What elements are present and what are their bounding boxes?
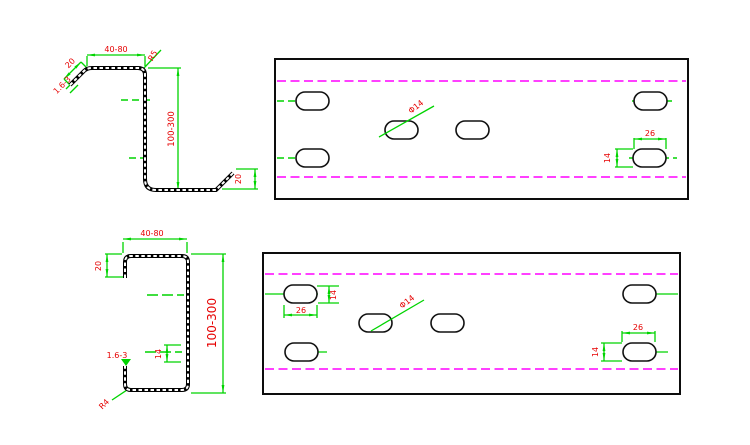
- slot-hole: [623, 343, 656, 361]
- dim-label-slot-width: 14: [154, 349, 163, 359]
- cad-drawing-canvas: 40-80 R5 20 1.6-3 100-300 20: [0, 0, 750, 445]
- dim-label-web-height: 100-300: [167, 111, 177, 147]
- dim-label-slot-length: 26: [645, 129, 655, 138]
- profile-hatch: [125, 256, 188, 390]
- extension-line: [81, 62, 87, 68]
- dim-label-slot-width: 14: [603, 153, 612, 163]
- slot-hole: [285, 343, 318, 361]
- slot-hole: [359, 314, 392, 332]
- dim-label-web-height: 100-300: [205, 298, 219, 348]
- dim-label-flange-width: 40-80: [140, 229, 163, 238]
- dim-label-flange-width: 40-80: [104, 45, 127, 54]
- dim-label-slot-length-left: 26: [296, 306, 306, 315]
- c-profile-view: 40-80 20 100-300 14 1.6-3 R4: [94, 229, 226, 411]
- slot-hole: [456, 121, 489, 139]
- slot-hole: [284, 285, 317, 303]
- dim-label-thickness: 1.6-3: [107, 351, 128, 360]
- dim-label-lip-length: 20: [94, 261, 103, 271]
- dim-label-slot-width-right: 14: [591, 347, 600, 357]
- dim-label-bend-radius: R5: [146, 49, 159, 63]
- slot-hole: [296, 92, 329, 110]
- dim-label-bend-radius: R4: [97, 397, 111, 411]
- profile-outline: [70, 68, 233, 190]
- slot-hole: [633, 149, 666, 167]
- slot-hole: [431, 314, 464, 332]
- dim-label-bottom-lip: 20: [234, 174, 243, 184]
- dim-label-slot-length-right: 26: [633, 323, 643, 332]
- slot-hole: [634, 92, 667, 110]
- top-strip-view: Φ14 26 14: [275, 59, 688, 199]
- thickness-arrow: [121, 359, 131, 366]
- slot-hole: [623, 285, 656, 303]
- slot-hole: [296, 149, 329, 167]
- z-profile-view: 40-80 R5 20 1.6-3 100-300 20: [52, 45, 258, 190]
- dim-label-slot-width-left: 14: [329, 290, 338, 300]
- profile-hatch: [70, 68, 233, 190]
- bottom-strip-view: 14 26 Φ14 26 14: [263, 253, 680, 394]
- profile-outline: [125, 256, 188, 390]
- cad-drawing: 40-80 R5 20 1.6-3 100-300 20: [0, 0, 750, 445]
